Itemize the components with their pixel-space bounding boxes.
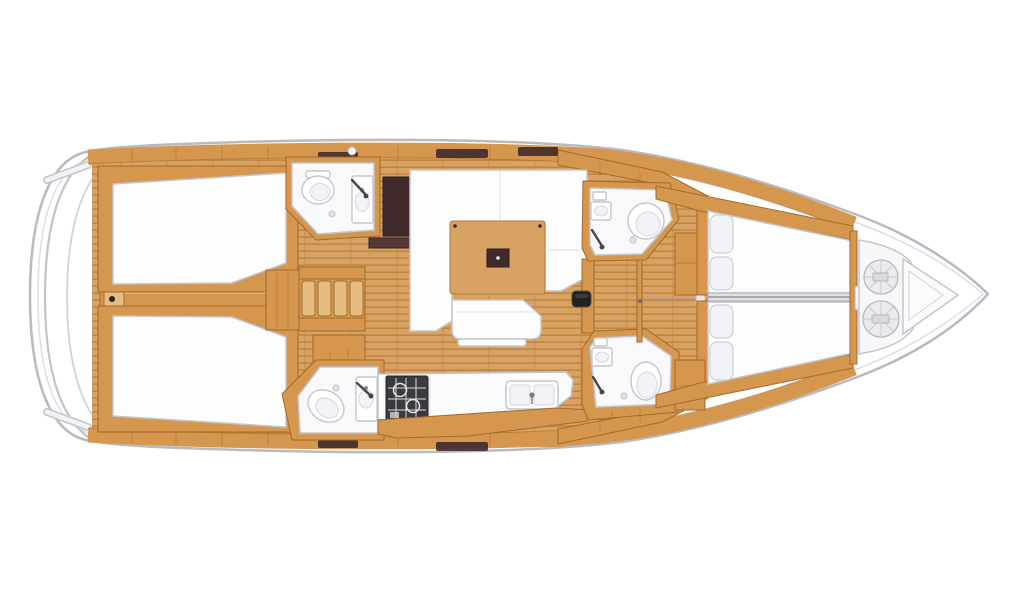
pillow <box>710 257 733 290</box>
stairs-top-rail <box>299 267 365 279</box>
shower-head <box>369 394 374 399</box>
table-bolt <box>453 224 457 228</box>
nav-shelf <box>369 238 412 248</box>
toilet-seat <box>636 212 660 236</box>
stair-tread <box>318 281 331 316</box>
nav-seat <box>383 177 410 236</box>
deck-vent-slot <box>518 147 558 156</box>
stair-tread <box>334 281 347 316</box>
sink-basin <box>596 352 609 362</box>
rope-coil <box>864 260 898 294</box>
door-handle <box>638 299 642 303</box>
coil-center <box>872 315 889 323</box>
pillow <box>710 342 733 380</box>
coil-center <box>873 273 888 281</box>
floor-drain <box>329 211 335 217</box>
stern-beam-knob <box>109 296 115 302</box>
deck-vent-slot <box>436 149 488 158</box>
shelf <box>594 338 607 346</box>
stairs-bottom-rail <box>299 318 365 331</box>
aft-cabin-starboard-berth <box>113 316 286 427</box>
floor-drain <box>621 393 627 399</box>
rope-coil <box>863 301 899 337</box>
sink-basin <box>595 206 608 216</box>
stove-tray <box>390 412 399 418</box>
stair-tread <box>302 281 315 316</box>
floorplan-svg <box>0 0 1024 600</box>
engine-box <box>266 270 300 330</box>
pillow <box>710 305 733 338</box>
table-bolt <box>538 224 542 228</box>
companionway-step-highlight <box>575 294 588 298</box>
table-center-dot <box>496 256 500 260</box>
deck-vent-slot <box>318 440 358 448</box>
floor-drain <box>630 237 636 243</box>
yacht-floorplan-canvas <box>0 0 1024 600</box>
sink-bowl <box>534 385 554 405</box>
berth-headboard-port <box>697 205 708 295</box>
pillow <box>710 215 733 253</box>
saloon-bench-lip <box>458 339 526 346</box>
toilet-seat <box>637 372 657 398</box>
shower-head <box>600 245 605 250</box>
shower-head <box>600 390 605 395</box>
floor-drain <box>333 385 339 391</box>
shelf <box>593 192 606 200</box>
sink-bowl <box>510 385 530 405</box>
aft-cabin-port-berth <box>113 173 286 284</box>
companionway-step <box>572 291 591 307</box>
deck-fitting <box>348 147 356 155</box>
toilet-seat <box>310 184 330 201</box>
bedside-step-port <box>675 233 697 295</box>
stair-tread <box>350 281 363 316</box>
saloon-bench <box>452 300 541 339</box>
shower-head <box>364 194 369 199</box>
deck-vent-slot <box>436 442 488 451</box>
